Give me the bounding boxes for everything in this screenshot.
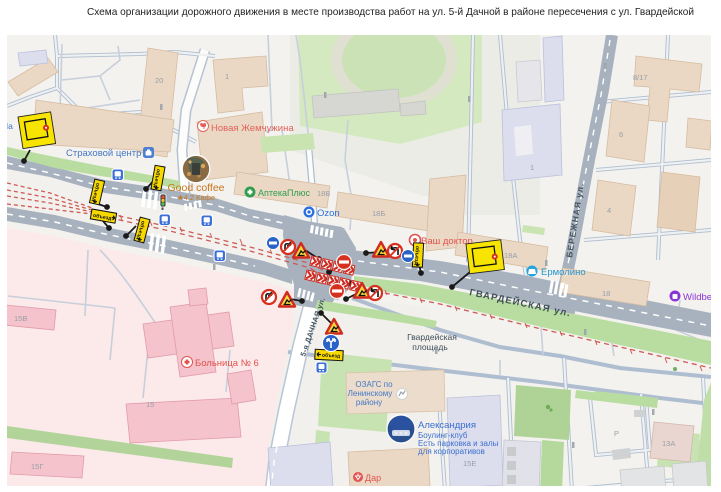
svg-text:6: 6 [619, 130, 623, 139]
svg-text:15Г: 15Г [31, 462, 43, 471]
svg-text:Р: Р [614, 429, 619, 438]
svg-text:Ма: Ма [1, 121, 13, 131]
svg-text:★4.2 Кафе: ★4.2 Кафе [177, 193, 215, 202]
svg-text:1: 1 [530, 163, 534, 172]
svg-text:18: 18 [602, 289, 610, 298]
svg-text:Ермолино: Ермолино [541, 267, 586, 278]
svg-text:8/17: 8/17 [633, 73, 648, 82]
svg-text:15В: 15В [14, 314, 27, 323]
svg-text:Ваш доктор: Ваш доктор [421, 236, 473, 247]
svg-text:18Б: 18Б [372, 209, 385, 218]
svg-text:объезд: объезд [322, 352, 341, 360]
svg-text:для корпоративов: для корпоративов [418, 447, 485, 456]
svg-text:15: 15 [146, 400, 154, 409]
svg-text:Александрия: Александрия [418, 420, 476, 431]
svg-text:Новая Жемчужина: Новая Жемчужина [211, 123, 294, 134]
svg-text:15Е: 15Е [463, 459, 476, 468]
svg-text:13А: 13А [662, 439, 675, 448]
svg-text:площадь: площадь [412, 342, 448, 352]
svg-text:ОЗАГС по: ОЗАГС по [355, 380, 393, 389]
svg-text:18А: 18А [504, 251, 517, 260]
svg-text:Гвардейская: Гвардейская [407, 332, 457, 342]
svg-text:1: 1 [225, 72, 229, 81]
svg-text:Дар: Дар [365, 473, 381, 483]
svg-text:20: 20 [155, 76, 163, 85]
svg-text:АптекаПлюс: АптекаПлюс [258, 188, 311, 198]
svg-text:Ozon: Ozon [317, 208, 340, 219]
svg-text:Wildberries: Wildberries [683, 292, 721, 303]
svg-text:18В: 18В [317, 189, 330, 198]
svg-text:району: району [356, 398, 382, 407]
svg-text:Больница № 6: Больница № 6 [195, 358, 259, 369]
svg-text:Страховой центр: Страховой центр [66, 148, 141, 159]
svg-text:4: 4 [607, 206, 611, 215]
svg-text:Ленинскому: Ленинскому [348, 389, 393, 398]
